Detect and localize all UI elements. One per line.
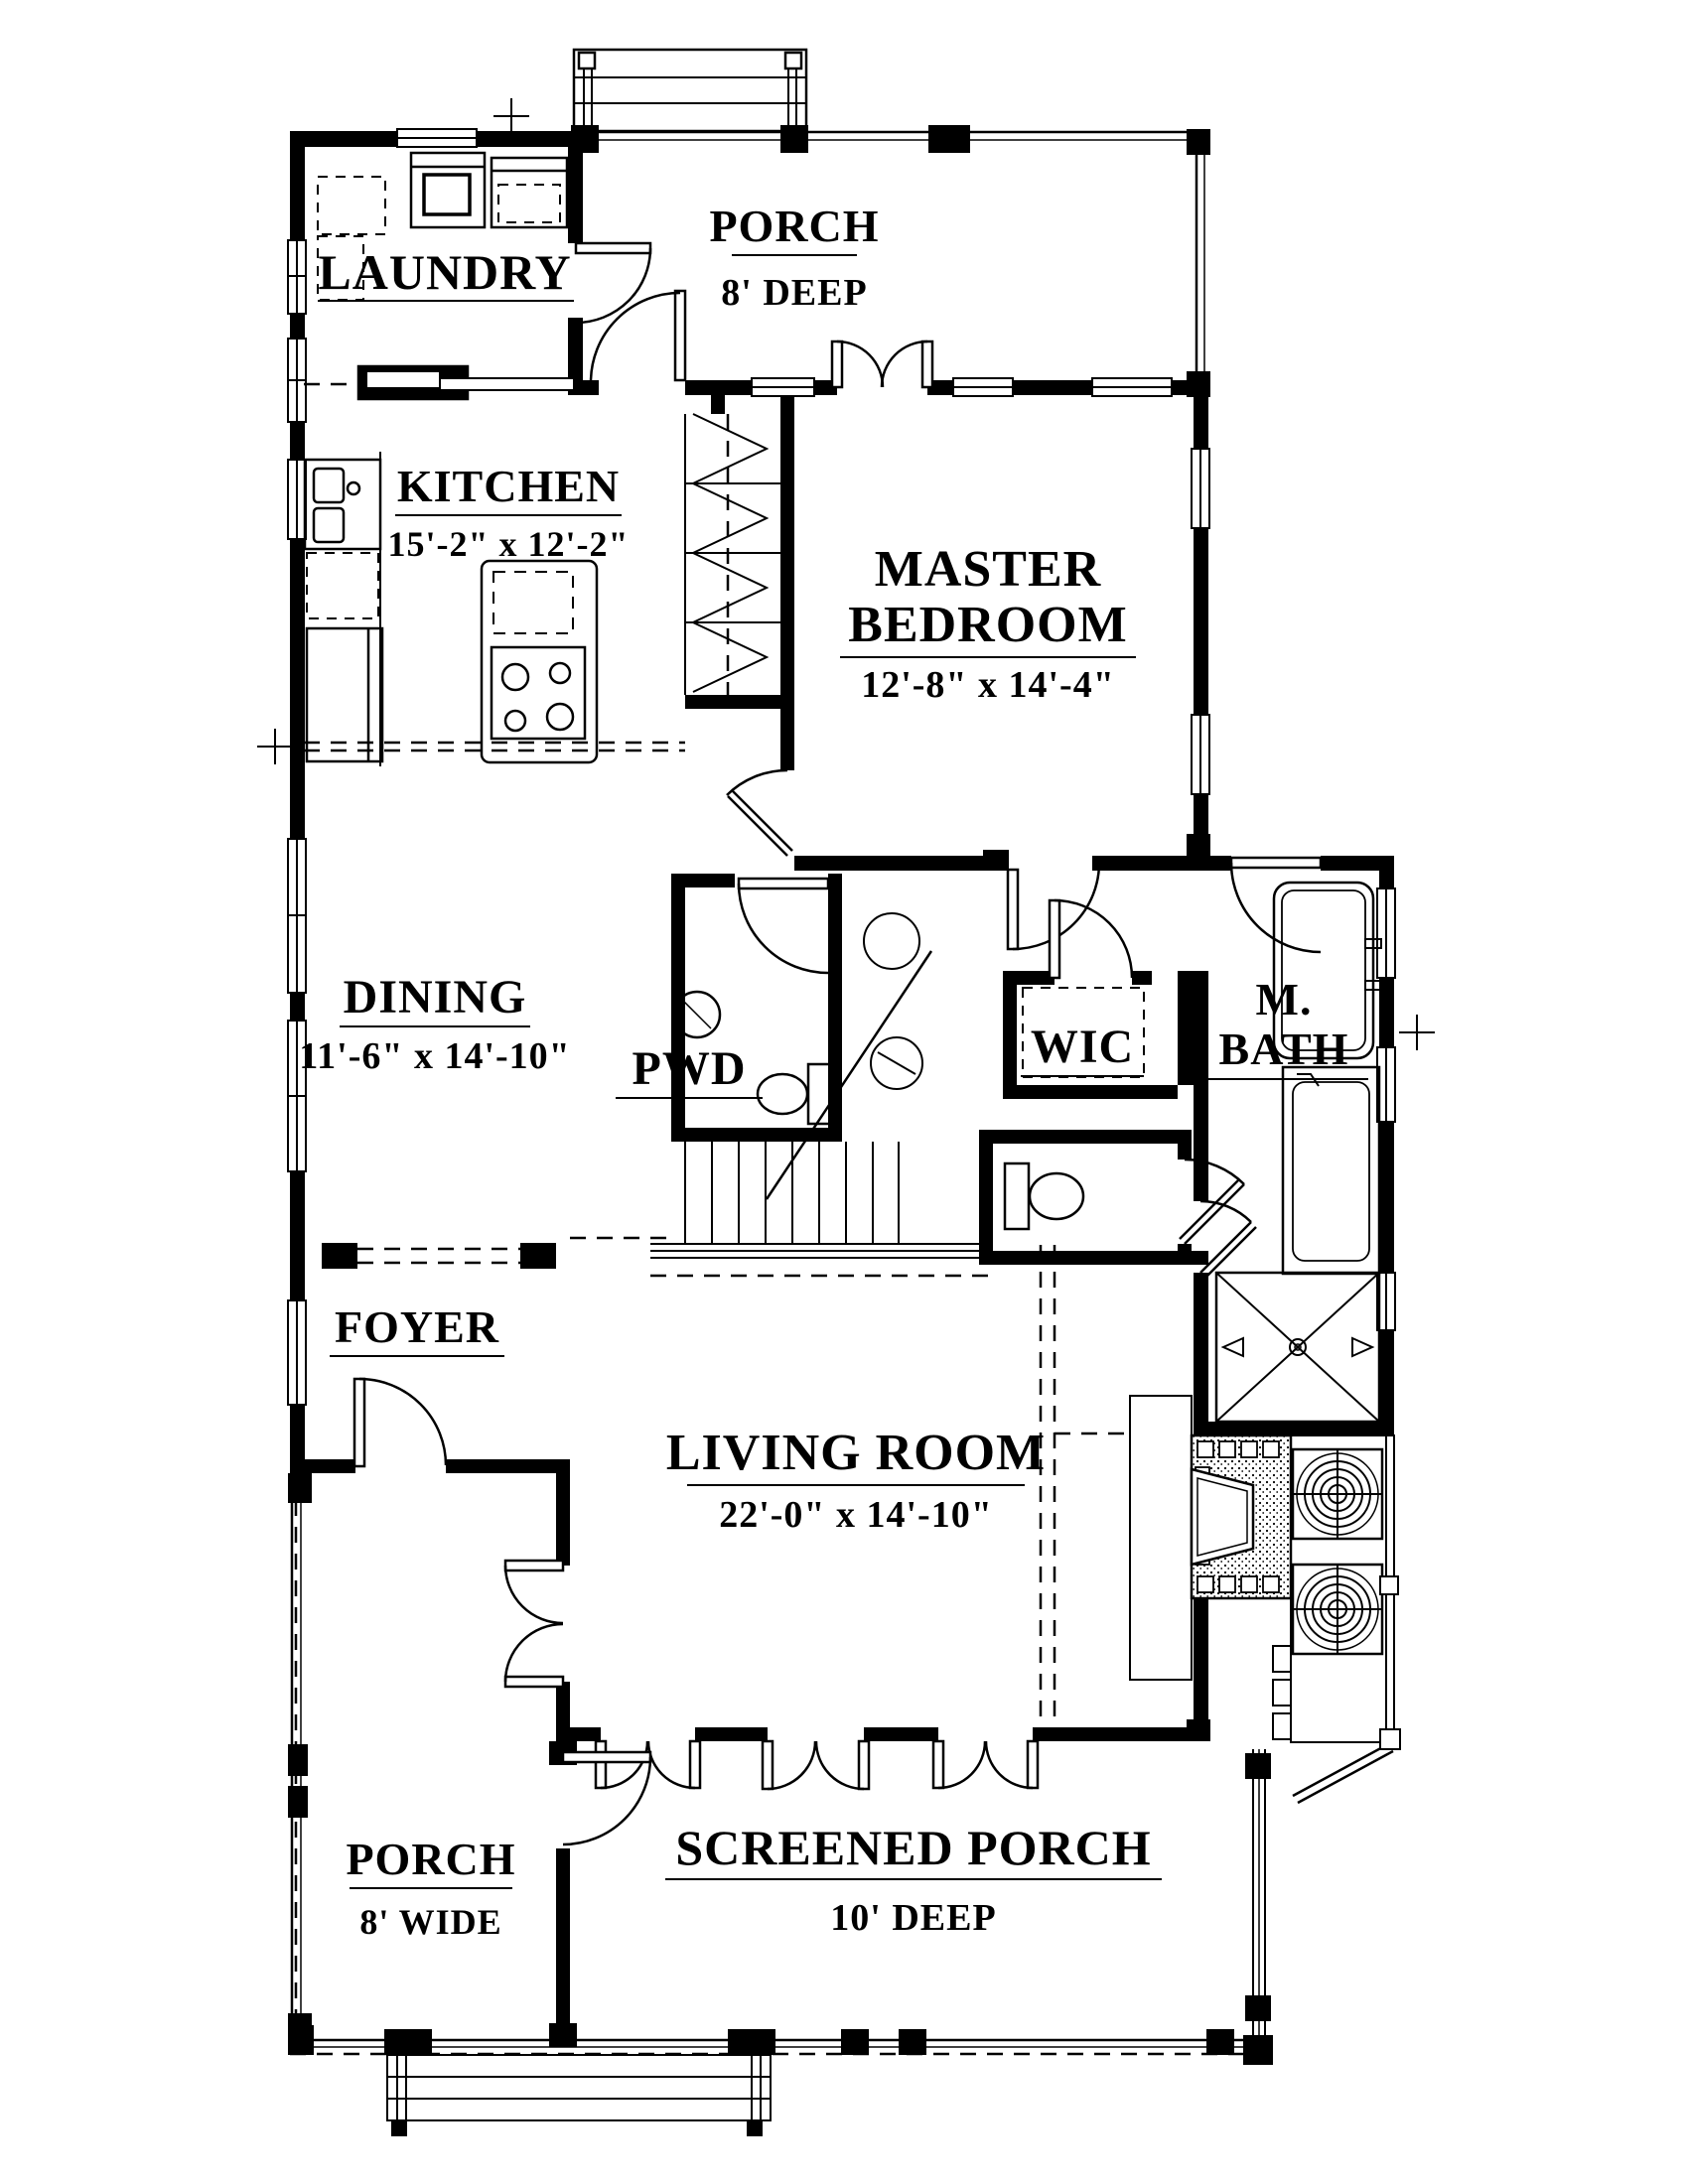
- window-laundry-left: [288, 240, 306, 314]
- kitchen-sink: [305, 460, 380, 549]
- hearth-platform: [1130, 1396, 1192, 1680]
- room-dims-master: 12'-8" x 14'-4": [861, 664, 1115, 706]
- window-master-top-3: [1092, 378, 1172, 396]
- room-label-screened-porch: SCREENED PORCH: [675, 1820, 1151, 1875]
- window-laundry-top: [397, 129, 477, 147]
- window-foyer-left: [288, 1300, 306, 1405]
- room-label-pwd: PWD: [633, 1042, 747, 1095]
- stoop: [574, 50, 806, 131]
- master-entry-door: [727, 770, 792, 856]
- walls: [290, 131, 1394, 2047]
- room-label-mbath-line1: M.: [1256, 974, 1313, 1024]
- room-label-kitchen: KITCHEN: [397, 461, 620, 511]
- crosshair-top: [493, 98, 529, 134]
- room-label-laundry: LAUNDRY: [318, 244, 571, 300]
- room-label-master-line1: MASTER: [875, 541, 1102, 598]
- electrical-boxes: [1273, 1646, 1291, 1739]
- top-porch-posts: [571, 125, 1210, 397]
- window-dining-left-pair1: [288, 839, 306, 993]
- room-dims-kitchen: 15'-2" x 12'-2": [388, 524, 630, 564]
- crosshair-right: [1399, 1015, 1435, 1050]
- room-dims-dining: 11'-6" x 14'-10": [299, 1035, 571, 1077]
- back-door: [591, 291, 685, 382]
- front-steps: [387, 2055, 771, 2136]
- dishwasher: [307, 553, 378, 618]
- window-master-top-1: [752, 378, 814, 396]
- floor-plan-drawing: LAUNDRY PORCH 8' DEEP KITCHEN 15'-2" x 1…: [0, 0, 1688, 2184]
- firebox: [1192, 1469, 1253, 1565]
- shower: [1216, 1273, 1379, 1422]
- room-dims-living: 22'-0" x 14'-10": [719, 1494, 993, 1536]
- window-laundry-left-2: [288, 339, 306, 422]
- master-bath-door: [1231, 858, 1321, 952]
- dryer: [492, 158, 567, 227]
- room-label-porch-left: PORCH: [346, 1834, 515, 1884]
- room-dims-porch-left: 8' WIDE: [359, 1902, 501, 1942]
- fixture-circle-upper: [864, 913, 919, 969]
- pwd-toilet: [758, 1064, 830, 1124]
- floor-plan-sheet: LAUNDRY PORCH 8' DEEP KITCHEN 15'-2" x 1…: [0, 0, 1688, 2184]
- bath-living-door: [1200, 1201, 1256, 1278]
- island-overhang: [493, 572, 573, 633]
- window-kitchen-left: [288, 460, 306, 539]
- washer: [411, 153, 485, 227]
- screened-porch-french-doors-2: [763, 1741, 869, 1789]
- crosshair-left: [257, 729, 293, 764]
- living-porch-french-doors: [505, 1561, 563, 1687]
- room-label-dining: DINING: [344, 971, 527, 1024]
- cooktop: [492, 647, 585, 739]
- fireplace: [1192, 1435, 1291, 1598]
- condenser-unit-1: [1293, 1449, 1382, 1539]
- window-master-right-2: [1192, 715, 1209, 794]
- kitchen-island: [482, 561, 597, 762]
- master-porch-french-doors: [832, 341, 932, 387]
- room-label-foyer: FOYER: [335, 1301, 499, 1352]
- room-label-mbath-line2: BATH: [1219, 1024, 1349, 1074]
- wic-door: [1050, 900, 1132, 978]
- screened-porch-french-doors-3: [933, 1741, 1038, 1788]
- window-bath-right-1: [1377, 888, 1395, 978]
- room-dims-screened-porch: 10' DEEP: [830, 1897, 996, 1939]
- windows: [288, 129, 1395, 1405]
- right-screen-posts: [1243, 1753, 1273, 2065]
- vanity: [1283, 1067, 1379, 1274]
- window-master-top-2: [953, 378, 1013, 396]
- front-door: [354, 1379, 446, 1466]
- hvac-units: [1273, 1435, 1400, 1803]
- room-label-porch-top: PORCH: [709, 201, 879, 251]
- pad-post: [1380, 1576, 1398, 1594]
- room-dims-porch-top: 8' DEEP: [721, 272, 867, 314]
- wc-toilet: [1005, 1163, 1083, 1229]
- pwd-door: [739, 879, 828, 973]
- pantry-shelves: [685, 414, 780, 695]
- room-label-master-line2: BEDROOM: [848, 597, 1127, 653]
- laundry-counter: [358, 366, 574, 399]
- condenser-unit-2: [1293, 1565, 1382, 1654]
- window-master-right-1: [1192, 449, 1209, 528]
- room-label-wic: WIC: [1031, 1021, 1134, 1073]
- room-label-living: LIVING ROOM: [666, 1425, 1046, 1481]
- laundry-door: [576, 243, 650, 323]
- corner-brace: [1293, 1729, 1400, 1803]
